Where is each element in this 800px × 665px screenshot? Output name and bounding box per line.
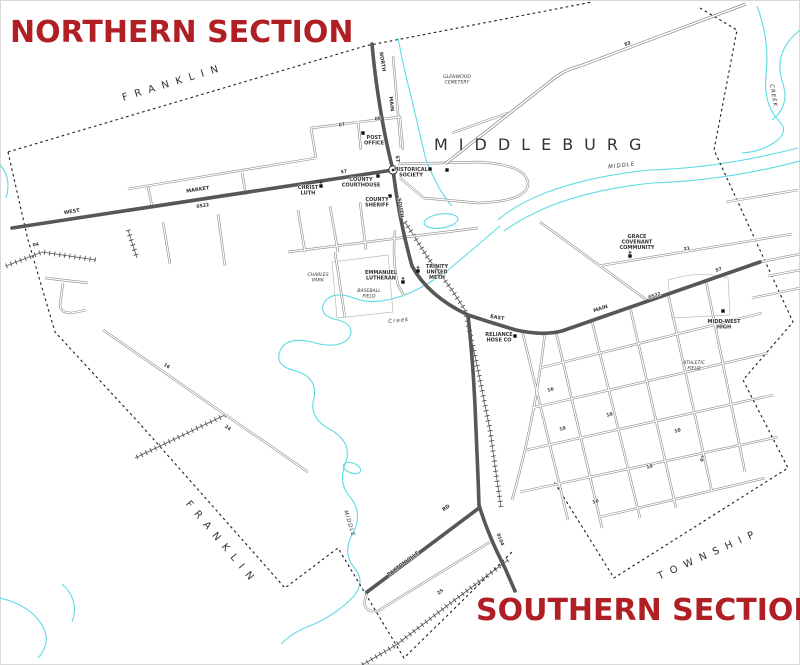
block-marker-16-sw: 16 xyxy=(162,362,171,371)
streets-centerline-part xyxy=(163,222,170,264)
creek-lines-part xyxy=(279,226,500,644)
building-post-office xyxy=(361,131,364,134)
block-marker-10-a: 10 xyxy=(559,425,567,433)
church-emmanuel-lutheran-part xyxy=(401,280,404,283)
building-historical-society-2 xyxy=(445,168,448,171)
building-midd-west-high xyxy=(721,309,724,312)
creek-label-creek-center: Creek xyxy=(388,317,410,325)
area-baseball-field: BASEBALLFIELD xyxy=(357,288,381,299)
building-county-sheriff-part xyxy=(388,194,391,197)
church-grace-covenant-part xyxy=(628,254,631,257)
place-post-office: POSTOFFICE xyxy=(364,135,385,146)
street-label-st: ST xyxy=(394,155,401,163)
township-label-franklin-north: F R A N K L I N xyxy=(121,63,222,103)
minor-streets-part xyxy=(60,283,86,313)
building-reliance-hose-co-part xyxy=(513,334,516,337)
streets-centerline-part xyxy=(335,252,345,318)
church-emmanuel-lutheran-part xyxy=(401,277,404,280)
streets-centerline-part xyxy=(668,294,712,492)
street-label-market: MARKET xyxy=(186,185,211,195)
creek-lines-part xyxy=(423,212,459,231)
block-marker-10-e: 10 xyxy=(674,427,682,435)
streets-centerline-part xyxy=(45,278,88,283)
creek-lines-part xyxy=(62,584,74,622)
railroad-lines-part xyxy=(405,222,501,507)
creek-lines-part xyxy=(0,165,8,198)
streets-centerline-part xyxy=(218,214,225,266)
building-county-courthouse-part xyxy=(376,174,379,177)
block-marker-04: 04 xyxy=(32,242,39,249)
street-label-north: NORTH xyxy=(377,52,386,72)
streets-centerline-part xyxy=(752,288,800,298)
block-marker-25: 25 xyxy=(436,588,445,597)
streets-centerline xyxy=(45,56,800,611)
block-marker-24: 24 xyxy=(223,424,232,433)
railroad-ticks xyxy=(6,222,508,665)
creek-label-middle-east: MIDDLE xyxy=(608,161,636,170)
building-post-office-part xyxy=(361,131,364,134)
block-marker-10-d: 10 xyxy=(592,498,600,506)
block-marker-07-n: 07 xyxy=(338,122,345,129)
northern-section-title: NORTHERN SECTION xyxy=(10,18,353,48)
area-charles-park: CHARLESPARK xyxy=(307,272,328,283)
streets-centerline-part xyxy=(148,187,152,206)
church-grace-covenant-part xyxy=(628,251,631,254)
street-label-paxtonville: PAXTONVILLE xyxy=(386,550,421,578)
church-emmanuel-lutheran xyxy=(401,277,404,284)
building-county-courthouse xyxy=(376,174,379,177)
road-south-main-st xyxy=(393,170,468,315)
block-marker-57-market: 57 xyxy=(340,169,347,176)
creek-lines-part xyxy=(0,598,46,658)
building-reliance-hose-co xyxy=(513,334,516,337)
building-historical-society-part xyxy=(428,167,431,170)
church-grace-covenant xyxy=(628,251,631,258)
place-christ-luth: CHRISTLUTH xyxy=(298,185,319,196)
place-emmanuel-lutheran: EMMANUELLUTHERAN xyxy=(365,270,398,281)
route-marker-0522-west: 0522 xyxy=(196,202,210,210)
place-reliance-hose-co: RELIANCEHOSE CO xyxy=(485,332,513,343)
block-marker-21: 21 xyxy=(683,246,690,253)
creek-lines-part xyxy=(342,460,362,476)
block-marker-10-b: 10 xyxy=(606,411,614,419)
township-label-township: T O W N S H I P xyxy=(655,529,758,583)
map-canvas: MIDDLEBURG F R A N K L I NF R A N K L I … xyxy=(0,0,800,665)
street-label-west: WEST xyxy=(63,208,80,217)
creek-label-middle-sw: MIDDLE xyxy=(342,510,356,538)
buildings-layer xyxy=(319,131,724,337)
southern-section-title: SOUTHERN SECTION xyxy=(476,596,800,626)
railroad-lines-part xyxy=(135,415,225,458)
creek-label-creek-ne: CREEK xyxy=(768,84,778,108)
route-marker-0104: 0104 xyxy=(495,533,505,547)
building-midd-west-high-part xyxy=(721,309,724,312)
place-historical-society: HISTORICALSOCIETY xyxy=(394,167,429,178)
streets-centerline-part xyxy=(726,190,798,202)
railroad-ticks-part xyxy=(405,222,501,507)
block-marker-08: 08 xyxy=(374,116,381,123)
railroad-lines-part xyxy=(128,230,137,258)
streets-centerline-part xyxy=(103,330,308,472)
streets-centerline-part xyxy=(592,321,640,518)
building-historical-society xyxy=(428,167,431,170)
place-midd-west-high: MIDD-WESTHIGH xyxy=(707,319,741,330)
minor-streets-part xyxy=(365,542,490,611)
streets-centerline-part xyxy=(288,228,478,252)
road-west-market-st xyxy=(12,170,393,228)
place-grace-covenant-community: GRACECOVENANTCOMMUNITY xyxy=(619,234,654,251)
streets-centerline-part xyxy=(60,283,86,313)
creek-lines-part xyxy=(398,38,452,206)
church-trinity-united-meth-part xyxy=(416,269,419,272)
field-outlines-part xyxy=(668,274,730,318)
church-trinity-united-meth-part xyxy=(416,266,419,269)
main-roads xyxy=(12,44,760,592)
church-trinity-united-meth xyxy=(416,266,419,273)
railroad-ticks-part xyxy=(6,252,96,266)
creek-lines-part xyxy=(742,6,784,153)
street-label-main-n: MAIN xyxy=(387,96,395,112)
township-label-franklin-south: F R A N K L I N xyxy=(183,499,257,584)
middleburg-borough-map: MIDDLEBURG F R A N K L I NF R A N K L I … xyxy=(0,0,800,665)
railroad-lines-part xyxy=(6,252,96,266)
town-label-middleburg: MIDDLEBURG xyxy=(434,135,652,154)
streets-centerline-part xyxy=(760,254,800,262)
streets-centerline-part xyxy=(600,478,765,517)
church-christ-luth-part xyxy=(319,184,322,187)
streets-centerline-part xyxy=(706,281,745,472)
area-glenwood-cemetery: GLENWOODCEMETERY xyxy=(443,74,471,85)
place-county-sheriff: COUNTYSHERIFF xyxy=(365,197,389,208)
street-label-main-e: MAIN xyxy=(593,304,609,315)
labels-layer: MIDDLEBURG F R A N K L I NF R A N K L I … xyxy=(32,40,778,596)
creek-lines xyxy=(0,6,800,658)
street-label-rd: RD xyxy=(441,503,451,513)
block-marker-16-grid: 16 xyxy=(547,386,555,394)
road-paxtonville-rd xyxy=(367,508,479,592)
block-marker-57-east: 57 xyxy=(715,266,723,274)
streets-centerline-part xyxy=(298,210,305,252)
building-county-sheriff xyxy=(388,194,391,197)
streets-centerline-part xyxy=(768,270,800,276)
minor-streets xyxy=(45,56,800,611)
railroad-lines xyxy=(6,222,508,665)
place-trinity-united-meth: TRINITYUNITEDMETH xyxy=(426,264,449,281)
building-historical-society-2-part xyxy=(445,168,448,171)
road-route-104-south xyxy=(468,315,479,505)
